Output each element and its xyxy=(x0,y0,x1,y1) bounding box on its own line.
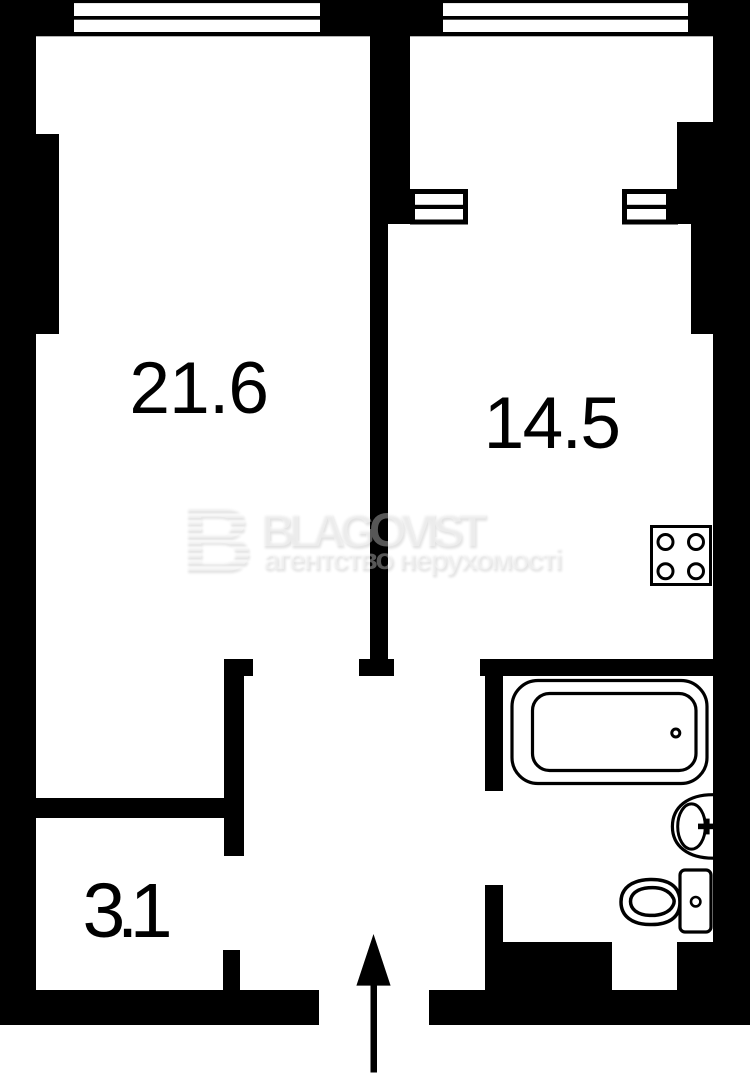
svg-text:3.1: 3.1 xyxy=(83,868,170,954)
svg-text:B: B xyxy=(180,486,253,592)
svg-text:21.6: 21.6 xyxy=(129,348,268,429)
svg-text:агентство нерухомості: агентство нерухомості xyxy=(263,543,561,576)
svg-text:14.5: 14.5 xyxy=(484,383,620,464)
